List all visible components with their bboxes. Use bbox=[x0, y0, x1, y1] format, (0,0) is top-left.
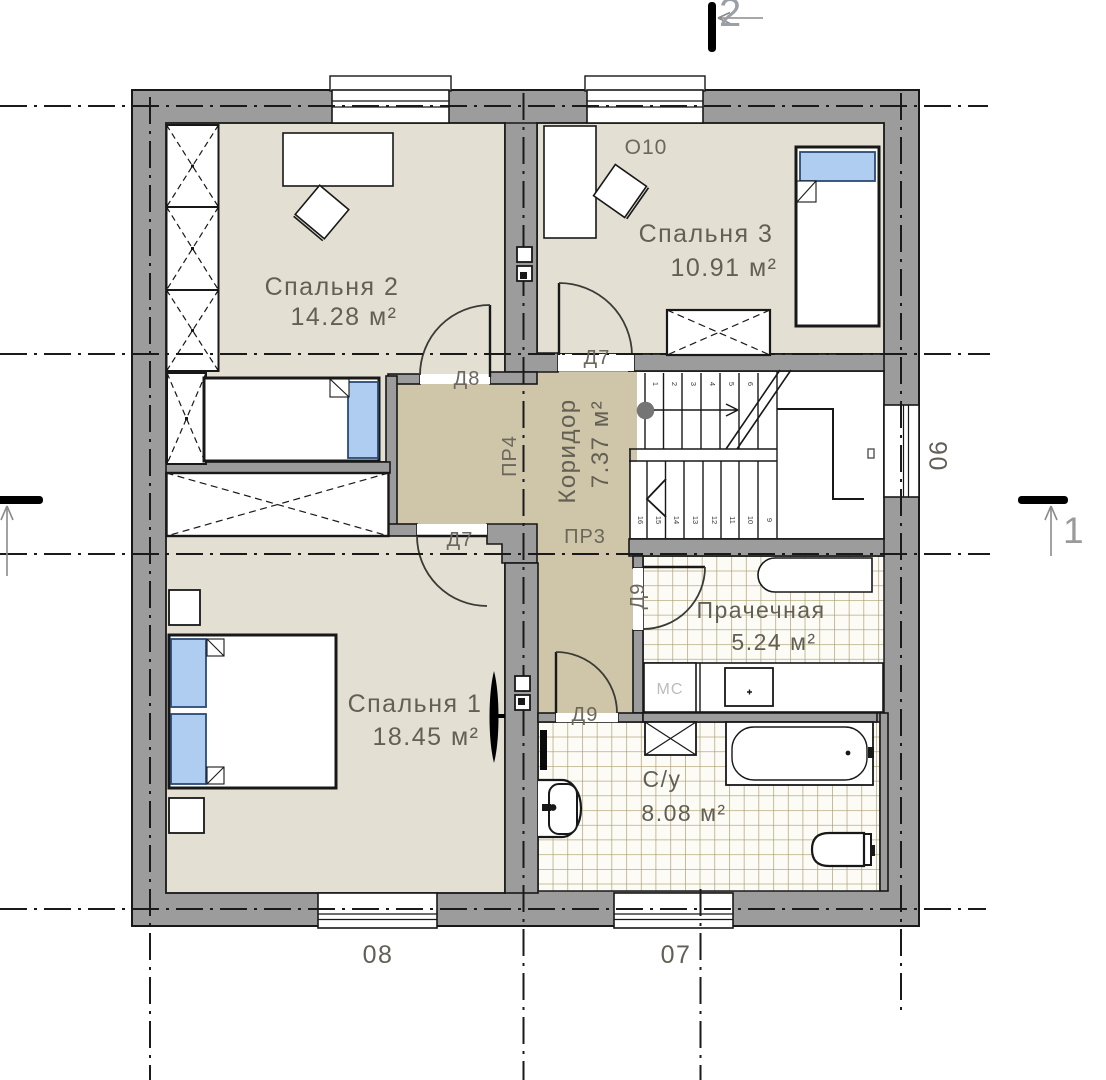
svg-text:ПР3: ПР3 bbox=[564, 526, 606, 548]
svg-text:Д8: Д8 bbox=[454, 368, 481, 390]
svg-text:06: 06 bbox=[925, 440, 953, 471]
svg-text:Д7: Д7 bbox=[584, 347, 611, 369]
svg-text:С/у: С/у bbox=[643, 766, 682, 792]
svg-text:5: 5 bbox=[727, 382, 736, 386]
svg-text:О10: О10 bbox=[625, 136, 668, 159]
svg-text:6: 6 bbox=[746, 382, 755, 386]
svg-text:1: 1 bbox=[651, 382, 660, 386]
svg-text:14: 14 bbox=[672, 516, 681, 524]
svg-text:10.91 м²: 10.91 м² bbox=[670, 254, 777, 282]
svg-text:14.28 м²: 14.28 м² bbox=[290, 303, 397, 331]
svg-text:7.37 м²: 7.37 м² bbox=[587, 400, 614, 488]
svg-text:08: 08 bbox=[363, 941, 394, 969]
svg-text:2: 2 bbox=[670, 382, 679, 386]
svg-text:1: 1 bbox=[1063, 510, 1084, 551]
svg-text:5.24 м²: 5.24 м² bbox=[731, 629, 816, 655]
svg-text:Спальня 3: Спальня 3 bbox=[639, 220, 774, 248]
svg-text:11: 11 bbox=[728, 516, 737, 524]
svg-text:15: 15 bbox=[654, 516, 663, 524]
svg-text:07: 07 bbox=[661, 941, 692, 969]
svg-text:Коридор: Коридор bbox=[554, 398, 581, 503]
svg-text:Д9: Д9 bbox=[627, 583, 649, 610]
svg-text:16: 16 bbox=[636, 516, 645, 524]
svg-text:Спальня 1: Спальня 1 bbox=[348, 690, 483, 718]
svg-text:МС: МС bbox=[657, 681, 684, 698]
svg-text:Спальня 2: Спальня 2 bbox=[265, 273, 400, 301]
svg-text:8.08 м²: 8.08 м² bbox=[641, 800, 726, 826]
svg-text:13: 13 bbox=[691, 516, 700, 524]
svg-text:ПР4: ПР4 bbox=[499, 435, 521, 477]
svg-text:12: 12 bbox=[710, 516, 719, 524]
svg-text:18.45 м²: 18.45 м² bbox=[372, 723, 479, 751]
svg-text:Д9: Д9 bbox=[572, 704, 599, 726]
svg-text:4: 4 bbox=[708, 382, 717, 386]
svg-text:3: 3 bbox=[689, 382, 698, 386]
svg-text:9: 9 bbox=[765, 518, 774, 522]
svg-text:10: 10 bbox=[746, 516, 755, 524]
svg-text:Прачечная: Прачечная bbox=[696, 597, 825, 623]
svg-text:2: 2 bbox=[719, 0, 741, 35]
svg-text:Д7: Д7 bbox=[447, 529, 474, 551]
